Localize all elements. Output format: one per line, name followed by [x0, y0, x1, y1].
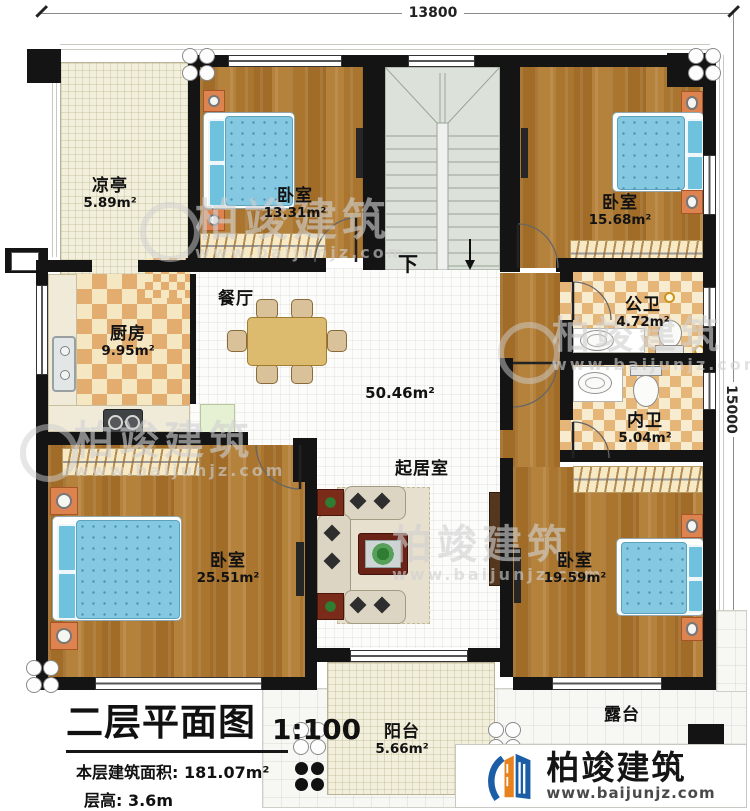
wall-segment — [703, 410, 716, 690]
wall-segment — [138, 260, 192, 272]
room-name: 厨房 — [110, 324, 146, 344]
brand-name: 柏竣建筑 — [546, 751, 715, 784]
sill-line — [723, 55, 724, 690]
pillow — [57, 572, 77, 620]
dimension-line-top — [41, 13, 733, 14]
pillow — [686, 119, 704, 155]
dining-chair — [227, 330, 247, 352]
nightstand — [50, 487, 78, 515]
dining-chair — [291, 364, 313, 384]
tv-panel — [521, 128, 528, 178]
dining-chair — [327, 330, 347, 352]
room-name: 露台 — [604, 705, 640, 725]
dimension-tick — [35, 5, 47, 17]
plan-title: 二层平面图 — [66, 692, 256, 746]
room-name: 阳台 — [384, 722, 420, 742]
bath-sink — [578, 372, 612, 394]
room-area: 5.66m² — [375, 742, 428, 758]
pillow — [687, 579, 704, 613]
wall-segment — [500, 648, 513, 677]
pillow — [57, 524, 77, 572]
brand-text: 柏竣建筑 www.baijunjz.com — [546, 751, 715, 802]
side-table — [317, 489, 344, 516]
plan-scale: 1:100 — [272, 713, 361, 746]
wall-segment — [36, 375, 48, 690]
pillow — [208, 163, 226, 207]
kitchen-sink — [52, 336, 76, 392]
wall-segment — [305, 648, 350, 662]
sink-basin — [60, 370, 70, 380]
window — [703, 372, 716, 410]
tv-panel — [296, 542, 304, 596]
room-name: 卧室 — [210, 551, 246, 571]
wall-segment — [500, 67, 520, 272]
duvet — [76, 520, 180, 619]
floor-height-line: 层高: 3.6m — [84, 787, 361, 811]
burner — [108, 415, 123, 430]
nightstand — [681, 514, 703, 538]
room-label-living-area: 50.46m² — [355, 385, 445, 403]
window — [228, 55, 342, 67]
wall-segment — [293, 438, 317, 482]
wall-segment — [513, 677, 552, 690]
wall-segment — [500, 458, 513, 648]
room-name: 卧室 — [602, 193, 638, 213]
wall-segment — [188, 67, 200, 258]
room-label-private-bath: 内卫 5.04m² — [600, 411, 690, 447]
wall-segment — [342, 55, 408, 67]
sill-line — [60, 49, 710, 50]
room-label-bedroom-b: 卧室 15.68m² — [575, 193, 665, 229]
wall-segment — [500, 358, 513, 430]
wall-segment — [703, 215, 716, 287]
sink-basin — [60, 346, 70, 356]
plant — [372, 543, 394, 565]
room-name: 起居室 — [395, 459, 449, 479]
brand-logo-icon — [486, 750, 536, 802]
room-area: 13.31m² — [264, 206, 327, 222]
room-area: 25.51m² — [197, 571, 260, 587]
wall-niche — [11, 252, 39, 271]
staircase — [385, 67, 500, 270]
bed — [612, 112, 704, 192]
wardrobe — [200, 233, 326, 259]
floor-area-line: 本层建筑面积: 181.07m² — [76, 759, 361, 783]
room-area: 50.46m² — [365, 385, 435, 403]
wall-segment — [560, 272, 573, 282]
room-area: 5.04m² — [618, 431, 671, 447]
floor-plan: 13800 15000 — [0, 0, 750, 811]
sill-line — [60, 44, 710, 45]
room-area: 9.95m² — [101, 344, 154, 360]
nightstand — [681, 617, 703, 641]
room-name: 卧室 — [557, 551, 593, 571]
round-columns — [182, 48, 216, 82]
duvet — [617, 116, 685, 190]
room-label-terrace: 露台 — [577, 705, 667, 725]
side-table — [317, 593, 344, 620]
tv-panel — [356, 128, 363, 178]
title-underline — [66, 750, 288, 753]
wall-segment — [703, 327, 716, 372]
tv-panel — [514, 548, 521, 603]
bed — [616, 538, 704, 616]
coffee-table — [358, 533, 408, 575]
wall-segment — [556, 258, 703, 272]
window — [703, 155, 716, 215]
pillow — [686, 155, 704, 191]
dimension-height: 15000 — [723, 382, 739, 437]
wall-segment — [48, 432, 248, 445]
sliding-door — [350, 650, 468, 662]
room-name: 内卫 — [627, 411, 663, 431]
bed — [52, 516, 182, 621]
room-label-living: 起居室 — [377, 459, 467, 479]
room-label-bedroom-c: 卧室 25.51m² — [183, 551, 273, 587]
dining-table — [247, 317, 327, 366]
nightstand — [203, 90, 225, 112]
wall-segment — [36, 260, 92, 272]
brand-url: www.baijunjz.com — [546, 784, 715, 802]
room-label-dining: 餐厅 — [191, 289, 281, 309]
pillow — [208, 119, 226, 163]
room-name: 凉亭 — [92, 176, 128, 196]
dining-chair — [256, 364, 278, 384]
sill-line — [56, 62, 57, 257]
window — [408, 55, 475, 67]
nightstand — [50, 622, 78, 650]
room-area: 4.72m² — [616, 315, 669, 331]
wall-segment — [262, 677, 317, 690]
window — [36, 285, 48, 375]
burner — [125, 415, 140, 430]
wall-segment — [363, 67, 385, 270]
window — [552, 677, 662, 690]
wall-column — [27, 49, 61, 83]
dimension-width: 13800 — [402, 5, 464, 21]
nightstand — [203, 209, 225, 231]
stairs-down-label: 下 — [398, 248, 418, 277]
window — [703, 287, 716, 327]
window — [95, 677, 262, 690]
room-label-bedroom-d: 卧室 19.59m² — [530, 551, 620, 587]
room-area: 5.89m² — [83, 196, 136, 212]
sill-line — [52, 62, 53, 257]
room-label-bedroom-a: 卧室 13.31m² — [250, 186, 340, 222]
room-area: 19.59m² — [544, 571, 607, 587]
sill-line — [719, 55, 720, 690]
nightstand — [681, 190, 703, 214]
room-area: 15.68m² — [589, 213, 652, 229]
room-label-balcony: 阳台 5.66m² — [357, 722, 447, 758]
duvet — [621, 542, 687, 614]
room-name: 卧室 — [277, 186, 313, 206]
floor-terrace — [716, 610, 747, 692]
room-name: 餐厅 — [218, 289, 254, 309]
room-label-kitchen: 厨房 9.95m² — [83, 324, 173, 360]
floor-pavilion — [60, 62, 192, 280]
wardrobe — [573, 466, 703, 493]
wall-segment — [186, 258, 326, 272]
round-columns — [688, 48, 722, 82]
wall-segment — [560, 450, 703, 462]
pillow — [687, 545, 704, 579]
round-columns — [26, 660, 60, 694]
room-label-public-bath: 公卫 4.72m² — [598, 295, 688, 331]
bath-sink — [580, 330, 614, 351]
brand-logo: 柏竣建筑 www.baijunjz.com — [455, 744, 747, 808]
dining-chair — [291, 299, 313, 319]
wardrobe — [62, 448, 200, 476]
title-block: 二层平面图 1:100 本层建筑面积: 181.07m² 层高: 3.6m — [66, 692, 361, 811]
wall-segment — [560, 320, 573, 420]
wall-segment — [560, 353, 703, 365]
room-name: 公卫 — [625, 295, 661, 315]
room-label-pavilion: 凉亭 5.89m² — [65, 176, 155, 212]
